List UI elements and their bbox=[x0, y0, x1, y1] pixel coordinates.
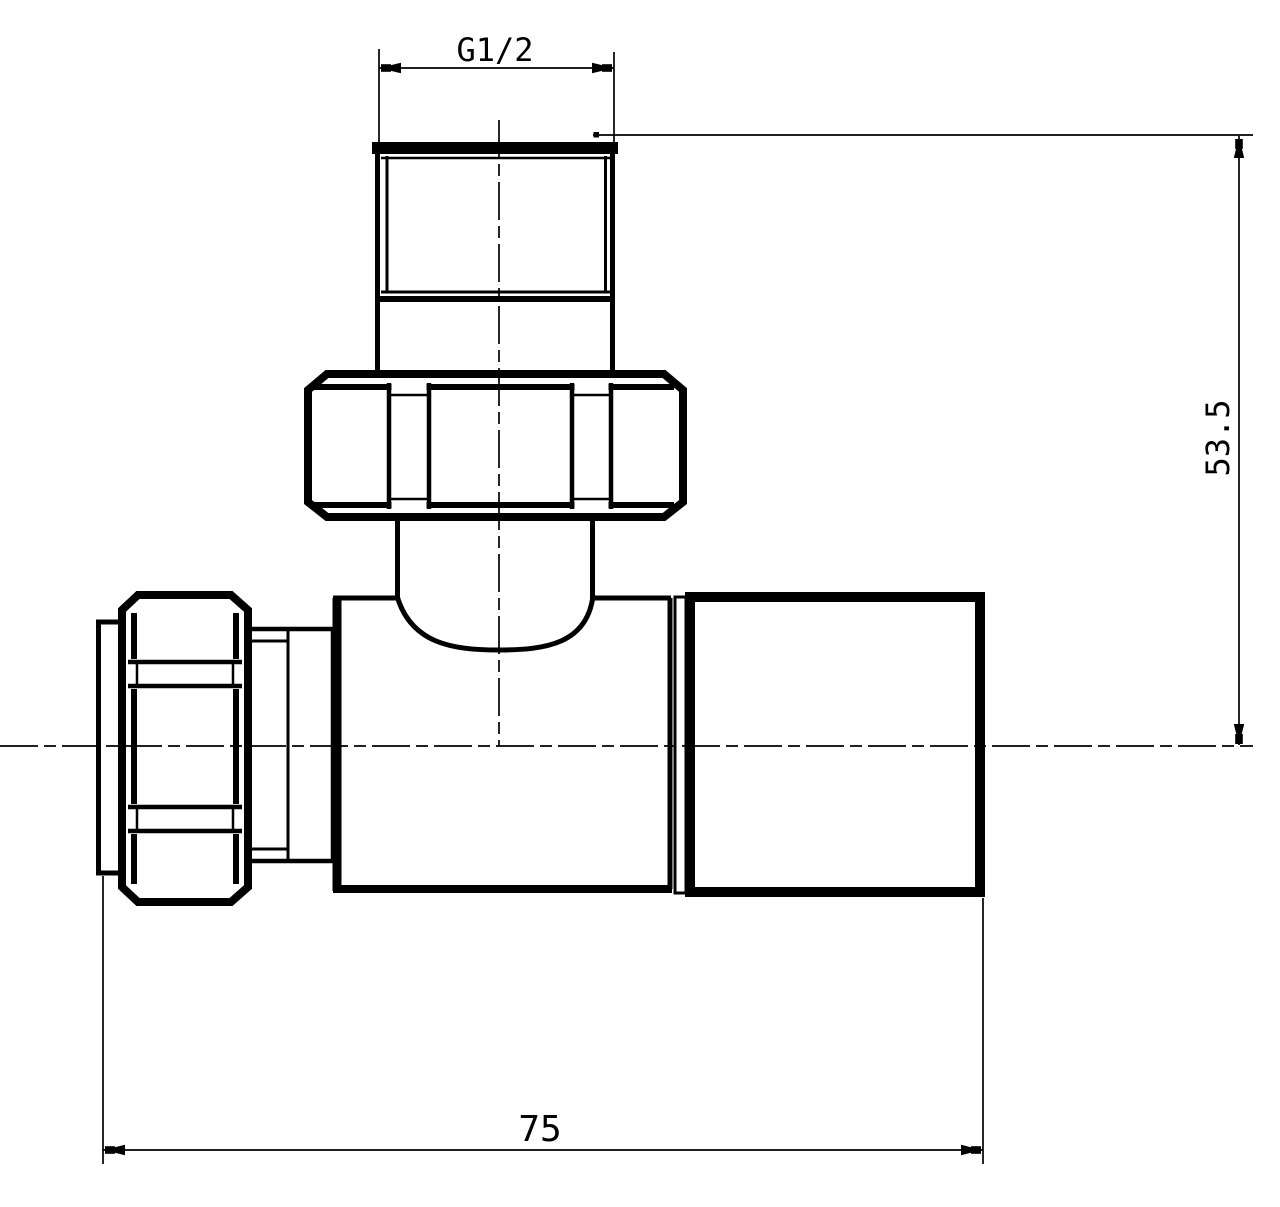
compression-nut-outline bbox=[122, 595, 248, 902]
union-nut-right-slot-fill bbox=[575, 380, 609, 510]
valve-neck bbox=[398, 517, 593, 598]
body-cap-joint-ring bbox=[675, 597, 686, 893]
height-dim-label: 53.5 bbox=[1199, 399, 1237, 476]
valve-cap-cylinder bbox=[690, 597, 980, 892]
arrowhead-left-tail bbox=[105, 1146, 115, 1154]
thread-dim-label: G1/2 bbox=[456, 31, 533, 69]
drawing-canvas: G1/2 53.5 75 bbox=[0, 0, 1280, 1207]
union-nut-outline bbox=[308, 374, 683, 517]
dimension-overall-length: 75 bbox=[103, 876, 983, 1164]
arrowhead-up-tail bbox=[1235, 139, 1243, 149]
joint-ring-outline bbox=[675, 597, 686, 893]
valve-neck-sides bbox=[398, 517, 593, 598]
compression-collar bbox=[248, 629, 333, 861]
valve-technical-drawing: G1/2 53.5 75 bbox=[0, 0, 1280, 1207]
fitting-sides bbox=[378, 150, 613, 375]
collar-outline bbox=[248, 629, 333, 861]
arrowhead-right-tail bbox=[971, 1146, 981, 1154]
dimension-thread-size: G1/2 bbox=[379, 31, 614, 143]
male-thread-fitting bbox=[372, 142, 618, 375]
union-nut-left-slot-fill bbox=[392, 380, 427, 510]
fitting-top-face bbox=[372, 142, 618, 154]
length-dim-label: 75 bbox=[518, 1109, 561, 1150]
arrowhead-down-tail bbox=[1235, 734, 1243, 744]
height-dim-leader-dot bbox=[594, 132, 600, 138]
compression-nut bbox=[122, 595, 248, 902]
arrowhead-left-tail bbox=[381, 64, 391, 72]
arrowhead-right-tail bbox=[602, 64, 612, 72]
valve-body bbox=[333, 596, 672, 891]
union-nut bbox=[308, 374, 683, 517]
valve-cap-outline bbox=[690, 597, 980, 892]
thread-root-lines bbox=[387, 156, 606, 292]
valve-body-bowl-arc bbox=[397, 596, 593, 650]
